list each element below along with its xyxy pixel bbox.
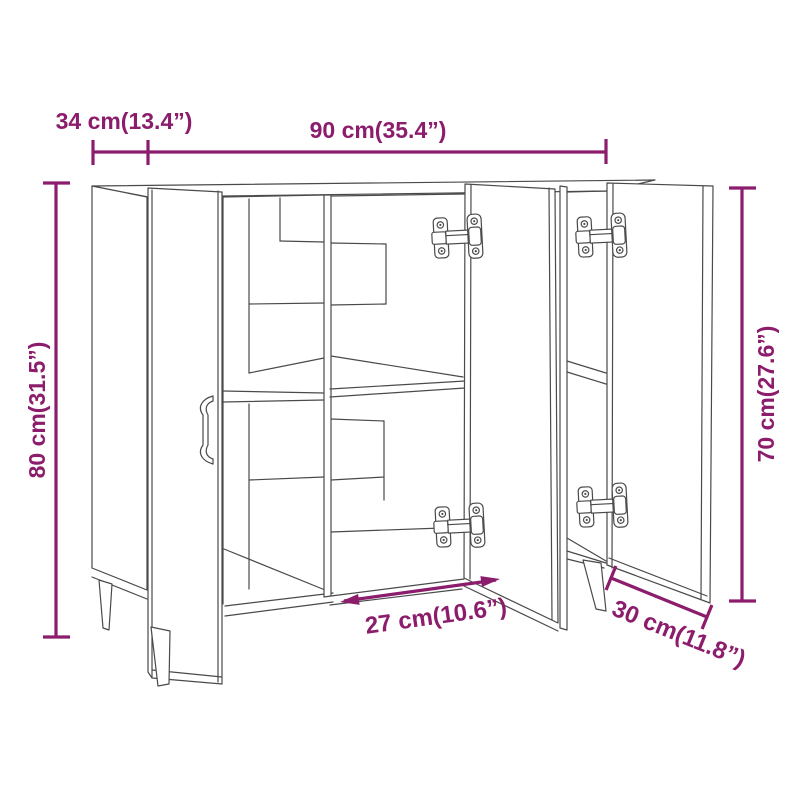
- dim-label-27cm: 27 cm(10.6”): [363, 593, 508, 640]
- left-side-panel: [92, 186, 147, 599]
- dimension-height-80cm: 80 cm(31.5”): [24, 183, 70, 637]
- hinge-icon: [431, 214, 483, 261]
- hinge-icon: [576, 483, 628, 530]
- dimension-depth-34cm: 34 cm(13.4”): [56, 108, 193, 165]
- center-divider: [324, 195, 331, 597]
- left-door: [148, 188, 222, 684]
- dim-label-34cm: 34 cm(13.4”): [56, 108, 193, 134]
- dimension-width-90cm: 90 cm(35.4”): [148, 117, 606, 164]
- dim-label-70cm: 70 cm(27.6”): [753, 326, 779, 463]
- cabinet-leg-back-left: [99, 580, 112, 630]
- left-interior-compartment: [223, 195, 333, 616]
- right-divider: [560, 186, 567, 630]
- hinge-icon: [575, 213, 627, 260]
- sideboard-dimension-diagram: 34 cm(13.4”) 90 cm(35.4”) 80 cm(31.5”) 7…: [0, 0, 800, 800]
- hinge-icon: [433, 503, 485, 550]
- dimension-door-height-70cm: 70 cm(27.6”): [729, 188, 779, 601]
- dimension-inner-width-27cm: 27 cm(10.6”): [340, 576, 509, 640]
- dim-label-90cm: 90 cm(35.4”): [310, 117, 447, 143]
- dim-label-80cm: 80 cm(31.5”): [24, 342, 50, 479]
- product-dimension-image: 34 cm(13.4”) 90 cm(35.4”) 80 cm(31.5”) 7…: [0, 0, 800, 800]
